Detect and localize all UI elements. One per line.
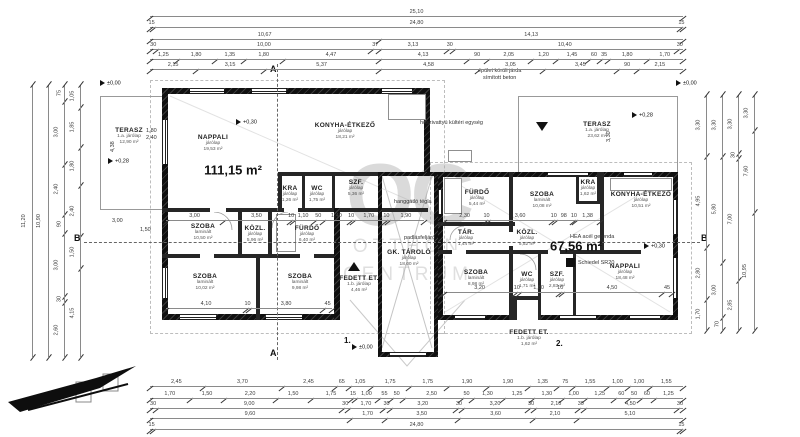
dim-segment: 3,05 — [478, 61, 544, 70]
dim-segment: 50 — [461, 390, 473, 399]
room-label-furdo-left: FÜRDŐ járólap 6,40 m² — [295, 225, 320, 244]
dim-segment: 45 — [662, 284, 672, 293]
dim-segment: 3,60 — [458, 410, 533, 419]
partition-wall — [256, 254, 260, 320]
dim-value: 1,00 — [361, 392, 372, 398]
dim-value: 10,40 — [558, 43, 572, 49]
window-opening — [548, 172, 588, 177]
dim-value: 65 — [339, 380, 345, 386]
dim-value: 10,67 — [258, 33, 272, 39]
dim-value: 45 — [325, 302, 331, 308]
dim-value: 3,20 — [474, 286, 485, 292]
dim-value: 50 — [631, 392, 637, 398]
site-sketch-arrow — [8, 358, 138, 420]
dim-segment: 1,35 — [528, 378, 557, 387]
dim-segment: 1,50 — [190, 390, 225, 399]
dim-value: 1,70 — [659, 53, 670, 59]
dim-value: 10,90 — [37, 214, 43, 228]
dim-value: 3,45 — [575, 63, 586, 69]
dim-segment: 1,25 — [503, 390, 532, 399]
dim-segment: 7,00 — [730, 158, 739, 280]
dim-value: 1,80 — [71, 161, 77, 172]
dim-value: 5,80 — [713, 203, 719, 214]
dim-segment: 1,40 — [323, 212, 350, 221]
dim-300: 3,00 — [112, 218, 123, 225]
dim-segment: 24,80 — [153, 421, 680, 430]
dim-value: 10,00 — [257, 43, 271, 49]
room-label-szoba2-left: SZOBA laminált 10,02 m² — [193, 273, 217, 292]
dim-value: 50 — [394, 392, 400, 398]
level-marker-zero-topright: ±0,00 — [676, 80, 697, 86]
dim-segment: 1,10 — [293, 212, 314, 221]
dim-segment: 50 — [628, 390, 640, 399]
dim-segment: 1,75 — [409, 378, 447, 387]
dim-segment: 1,55 — [573, 378, 606, 387]
dim-segment: 4,47 — [283, 51, 379, 60]
room-label-konyha-left: KONYHA-ÉTKEZŐ járólap 18,21 m² — [315, 122, 376, 141]
dimension-chain-left-4: 1,051,851,802,401,504,15 — [72, 85, 81, 357]
dim-value: 1,90 — [401, 214, 412, 220]
floor-plan-drawing: OC OTTHON CENTRUM — [0, 0, 800, 437]
dim-value: 1,50 — [71, 247, 77, 258]
dim-value: 1,35 — [225, 53, 236, 59]
dim-value: 3,70 — [237, 380, 248, 386]
dim-value: 2,45 — [303, 380, 314, 386]
dim-segment: 3,20 — [462, 400, 528, 409]
dim-segment: 2,50 — [403, 390, 461, 399]
room-label-wc-left: WC járólap 1,75 m² — [309, 185, 325, 204]
room-label-kra-left: KRA járólap 1,26 m² — [282, 185, 298, 204]
dim-value: 3,60 — [515, 214, 526, 220]
dim-segment: 3,00 — [56, 233, 65, 296]
kitchen-counter — [610, 178, 672, 191]
dim-segment: 2,30 — [444, 212, 485, 221]
dimension-chain-inner-left-2: 4,10103,8045 — [166, 300, 332, 309]
dim-330: 3,30 — [606, 131, 613, 142]
dim-segment: 3,80 — [249, 300, 323, 309]
dim-segment: 75 — [56, 85, 65, 101]
dim-value: 1,25 — [594, 392, 605, 398]
dim-segment: 1,80 — [519, 284, 559, 293]
dimension-chain-right-3: 3,30307,002,85 — [730, 95, 739, 330]
dim-segment: 3,45 — [543, 61, 617, 70]
dim-segment: 3,00 — [166, 212, 223, 221]
level-marker-nappali: +0,30 — [236, 119, 257, 125]
dim-segment: 1,80 — [72, 147, 81, 185]
dim-value: 7,00 — [729, 214, 735, 225]
dim-segment: 4,95 — [698, 156, 707, 247]
window-opening — [180, 314, 216, 320]
dim-segment: 10,67 — [150, 31, 379, 40]
section-line-b — [84, 242, 700, 243]
dim-segment: 1,75 — [311, 390, 352, 399]
plan-number-1: 1. — [344, 336, 351, 345]
window-dim-pair: 1,80 2,40 — [146, 128, 157, 141]
entry-arrow-right — [536, 122, 548, 131]
dim-value: 2,30 — [459, 214, 470, 220]
level-marker-right-b: +0,30 — [644, 243, 665, 249]
dim-value: 2,15 — [168, 63, 179, 69]
dim-value: 9,00 — [244, 402, 255, 408]
dim-value: 1,70 — [164, 392, 175, 398]
garage-door-opening — [390, 352, 426, 357]
dim-value: 70 — [715, 321, 721, 327]
dim-value: 30 — [677, 402, 683, 408]
dim-segment: 25,10 — [150, 8, 683, 17]
dim-value: 3,30 — [729, 118, 735, 129]
dim-150: 1,50 — [140, 227, 151, 234]
dim-segment: 2,80 — [698, 247, 707, 299]
dim-segment: 2,85 — [730, 280, 739, 330]
door-opening — [200, 254, 214, 258]
dim-segment: 1,05 — [349, 378, 372, 387]
dim-value: 60 — [591, 53, 597, 59]
dim-value: 2,15 — [655, 63, 666, 69]
dim-segment: 45 — [323, 300, 332, 309]
dim-segment: 1,90 — [447, 378, 488, 387]
dimension-chain-top-3: 10,6714,13 — [150, 31, 683, 40]
dim-value: 3,15 — [225, 63, 236, 69]
dim-value: 24,80 — [410, 423, 424, 429]
dimension-chain-right-1: 3,304,952,801,70 — [698, 95, 707, 330]
door-opening — [300, 254, 314, 258]
door-opening — [509, 232, 513, 246]
dimension-chain-right-2: 3,305,803,0070 — [714, 95, 723, 330]
room-label-szoba1-left: SZOBA laminált 10,50 m² — [191, 223, 215, 242]
dim-segment: 3,00 — [56, 101, 65, 164]
dim-segment: 10,00 — [156, 41, 371, 50]
dim-segment: 1,45 — [556, 51, 587, 60]
dimension-chain-inner-right-1: 2,30103,601098101,38 — [444, 212, 600, 221]
dim-value: 1,80 — [191, 53, 202, 59]
dim-value: 2,40 — [55, 184, 61, 195]
dim-segment: 10,40 — [453, 41, 677, 50]
dim-segment: 10,90 — [40, 85, 49, 357]
dimension-chain-bottom-5: 1524,8015 — [150, 421, 683, 430]
dim-segment: 1,00 — [628, 378, 649, 387]
dim-value: 90 — [474, 53, 480, 59]
level-marker-zero-topleft: ±0,00 — [100, 80, 121, 86]
dim-value: 1,50 — [202, 392, 213, 398]
dim-segment: 2,40 — [72, 185, 81, 236]
dim-value: 90 — [57, 221, 63, 227]
dimension-chain-top-6: 2,153,155,374,583,053,45902,15 — [150, 61, 683, 70]
dim-segment: 90 — [617, 61, 636, 70]
window-opening — [630, 315, 660, 320]
dim-segment: 2,45 — [282, 378, 335, 387]
dim-segment: 4,15 — [72, 268, 81, 357]
dim-segment: 1,90 — [388, 212, 424, 221]
dim-value: 1,55 — [661, 380, 672, 386]
dim-segment: 1,55 — [650, 378, 683, 387]
dim-value: 2,80 — [697, 268, 703, 279]
dim-value: 4,13 — [418, 53, 429, 59]
dim-value: 1,00 — [568, 392, 579, 398]
dim-segment: 1,80 — [177, 51, 216, 60]
room-label-fedett-right: FEDETT ET. 1.b. járólap 1,62 m² — [509, 329, 548, 348]
dim-segment: 1,70 — [350, 410, 385, 419]
dim-segment: 3,30 — [730, 95, 739, 153]
dimension-chain-top-1: 25,10 — [150, 8, 683, 17]
dim-segment: 4,10 — [166, 300, 246, 309]
dim-segment: 30 — [677, 400, 683, 409]
window-opening — [560, 315, 596, 320]
dim-value: 1,85 — [71, 122, 77, 133]
dim-segment: 4,13 — [379, 51, 468, 60]
dim-segment: 60 — [588, 51, 601, 60]
dim-value: 3,50 — [251, 214, 262, 220]
dim-segment: 1,30 — [532, 390, 562, 399]
dim-value: 3,30 — [697, 120, 703, 131]
dim-value: 1,00 — [634, 380, 645, 386]
dim-segment: 9,00 — [156, 400, 342, 409]
dim-value: 3,60 — [490, 412, 501, 418]
dim-segment: 2,05 — [487, 51, 531, 60]
dim-value: 3,00 — [189, 214, 200, 220]
dim-value: 1,90 — [462, 380, 473, 386]
dim-value: 35 — [601, 53, 607, 59]
total-area-right: 67,56 m² — [550, 239, 602, 254]
dim-segment: 1,00 — [562, 390, 585, 399]
dim-value: 4,58 — [423, 63, 434, 69]
dim-value: 4,50 — [607, 286, 618, 292]
window-opening — [438, 190, 443, 214]
room-label-szf-left: SZF. járólap 5,36 m² — [348, 179, 364, 198]
dim-segment: 15 — [680, 421, 683, 430]
room-label-nappali-left: NAPPALI járólap 19,53 m² — [198, 134, 228, 153]
dim-segment: 15 — [680, 19, 683, 28]
dim-value: 2,10 — [550, 412, 561, 418]
dim-segment: 65 — [335, 378, 349, 387]
dim-segment: 1,50 — [72, 236, 81, 268]
dim-segment: 3,20 — [390, 400, 456, 409]
dimension-chain-right-4: 3,307,6010,95 — [746, 95, 755, 330]
dim-value: 10,95 — [743, 264, 749, 278]
dim-value: 1,75 — [385, 380, 396, 386]
dim-segment: 1,80 — [244, 51, 283, 60]
dim-segment: 1,25 — [654, 390, 683, 399]
window-opening — [673, 200, 678, 234]
dim-value: 5,37 — [316, 63, 327, 69]
partition-wall — [603, 250, 641, 254]
room-label-nappali-right: NAPPALI járólap 18,48 m² — [610, 263, 640, 282]
level-marker-terasz-right: +0,28 — [632, 112, 653, 118]
dim-segment: 5,37 — [264, 61, 379, 70]
dim-value: 1,30 — [482, 392, 493, 398]
dimension-chain-left-1: 11,20 — [24, 85, 33, 357]
room-label-kozl-right: KÖZL. járólap 5,52 m² — [517, 229, 538, 248]
dim-value: 2,60 — [55, 324, 61, 335]
chimney — [566, 258, 575, 267]
dim-value: 15 — [678, 21, 684, 27]
dim-segment: 2,40 — [56, 164, 65, 214]
dim-value: 1,05 — [355, 380, 366, 386]
dimension-chain-top-2: 1524,8015 — [150, 19, 683, 28]
plan-number-2: 2. — [556, 339, 563, 348]
dim-segment: 3,50 — [223, 212, 290, 221]
dim-value: 37 — [372, 43, 378, 49]
dim-value: 3,80 — [281, 302, 292, 308]
dim-value: 1,80 — [622, 53, 633, 59]
bathtub — [444, 178, 462, 214]
room-label-szoba3-left: SZOBA laminált 9,98 m² — [288, 273, 312, 292]
dim-value: 24,80 — [410, 21, 424, 27]
dim-segment: 4,50 — [584, 400, 677, 409]
dim-value: 50 — [463, 392, 469, 398]
dim-segment: 3,60 — [488, 212, 552, 221]
dim-segment: 1,25 — [150, 51, 177, 60]
dim-segment: 1,38 — [575, 212, 600, 221]
dim-value: 3,50 — [416, 412, 427, 418]
dim-value: 1,70 — [363, 214, 374, 220]
dim-segment: 1,80 — [608, 51, 647, 60]
dim-segment: 2,60 — [56, 302, 65, 357]
window-opening — [162, 268, 168, 298]
dim-segment: 50 — [314, 212, 324, 221]
dim-value: 45 — [664, 286, 670, 292]
dim-value: 1,50 — [288, 392, 299, 398]
room-label-garage: GK. TÁROLÓ járólap 18,00 m² — [387, 249, 431, 268]
dim-segment: 1,00 — [355, 390, 378, 399]
dim-value: 25,10 — [410, 10, 424, 16]
dimension-chain-inner-left-1: 3,003,50101,10501,40101,70101,90 — [166, 212, 424, 221]
dim-value: 2,50 — [426, 392, 437, 398]
dim-value: 7,60 — [745, 166, 751, 177]
dim-value: 5,10 — [625, 412, 636, 418]
dim-value: 4,47 — [326, 53, 337, 59]
dim-segment: 1,50 — [276, 390, 311, 399]
dim-value: 3,30 — [713, 120, 719, 131]
dim-segment: 7,60 — [746, 130, 755, 212]
dim-value: 1,30 — [541, 392, 552, 398]
dim-value: 30 — [677, 43, 683, 49]
dim-value: 1,75 — [326, 392, 337, 398]
dimension-chain-bottom-4: 9,601,703,503,602,105,10 — [150, 410, 683, 419]
window-opening — [190, 88, 224, 94]
dim-value: 3,20 — [490, 402, 501, 408]
dim-segment: 30 — [677, 41, 683, 50]
dim-value: 4,15 — [71, 307, 77, 318]
dim-value: 3,20 — [417, 402, 428, 408]
dim-value: 1,05 — [71, 91, 77, 102]
dim-value: 1,45 — [567, 53, 578, 59]
dim-value: 75 — [562, 380, 568, 386]
dim-segment: 2,15 — [637, 61, 683, 70]
dim-segment: 9,60 — [150, 410, 350, 419]
kitchen-counter — [388, 94, 426, 120]
dimension-chain-top-4: 3010,00373,133010,4030 — [150, 41, 683, 50]
dim-value: 1,80 — [258, 53, 269, 59]
heat-pump-unit — [448, 150, 472, 162]
dim-segment: 3,00 — [714, 262, 723, 317]
dim-value: 2,85 — [729, 300, 735, 311]
partition-wall — [302, 172, 305, 212]
window-opening — [162, 120, 168, 164]
dim-segment: 1,35 — [215, 51, 244, 60]
dim-value: 4,50 — [625, 402, 636, 408]
room-label-tar-right: TÁR. járólap 1,44 m² — [458, 229, 474, 248]
dim-segment: 1,70 — [353, 212, 385, 221]
dim-segment: 2,10 — [534, 400, 577, 409]
dim-value: 60 — [644, 392, 650, 398]
dimension-chain-left-2: 10,90 — [40, 85, 49, 357]
dim-value: 3,00 — [713, 284, 719, 295]
dimension-chain-inner-right-2: 3,20101,80104,5045 — [444, 284, 672, 293]
dim-segment: 55 — [378, 390, 391, 399]
window-opening — [266, 314, 302, 320]
dim-value: 15 — [678, 423, 684, 429]
dim-segment: 24,80 — [153, 19, 680, 28]
dim-segment: 90 — [56, 214, 65, 233]
note-padlasfeljaro: padlásfeljáró — [404, 235, 435, 242]
dim-segment: 5,10 — [577, 410, 683, 419]
dim-value: 90 — [624, 63, 630, 69]
dim-segment: 1,70 — [348, 400, 383, 409]
dim-value: 1,25 — [663, 392, 674, 398]
room-label-konyha-right: KONYHA-ÉTKEZŐ járólap 10,51 m² — [611, 191, 672, 210]
dim-value: 3,05 — [505, 63, 516, 69]
level-marker-zero-bottom: ±0,00 — [352, 344, 373, 350]
dim-segment: 60 — [614, 390, 628, 399]
dim-value: 3,13 — [408, 43, 419, 49]
dim-value: 50 — [315, 214, 321, 220]
dim-value: 2,10 — [551, 402, 562, 408]
dim-value: 30 — [447, 43, 453, 49]
dim-value: 1,25 — [158, 53, 169, 59]
dim-value: 1,55 — [585, 380, 596, 386]
dim-value: 2,05 — [503, 53, 514, 59]
dimension-chain-left-3: 753,002,40903,00302,60 — [56, 85, 65, 357]
dim-value: 30 — [150, 43, 156, 49]
dim-segment: 3,30 — [698, 95, 707, 156]
dim-value: 2,20 — [245, 392, 256, 398]
dimension-chain-bottom-1: 2,453,702,45651,051,751,751,901,901,3575… — [150, 378, 683, 387]
dim-value: 11,20 — [22, 214, 28, 227]
dim-value: 3,00 — [55, 127, 61, 138]
wall — [378, 172, 438, 176]
wall — [378, 172, 382, 357]
dim-segment: 1,75 — [371, 378, 409, 387]
dim-segment: 3,50 — [385, 410, 458, 419]
dim-segment: 75 — [557, 378, 573, 387]
dim-segment: 35 — [600, 51, 608, 60]
section-marker-a-bottom: A — [270, 348, 277, 358]
dim-segment: 11,20 — [24, 85, 33, 357]
dim-segment: 3,13 — [379, 41, 446, 50]
room-label-furdo-right: FÜRDŐ járólap 5,44 m² — [465, 189, 490, 208]
window-opening — [455, 315, 485, 320]
dim-segment: 60 — [640, 390, 654, 399]
room-label-kozl-left: KÖZL. járólap 5,96 m² — [245, 225, 266, 244]
dim-segment: 1,20 — [531, 51, 557, 60]
dim-segment: 4,50 — [562, 284, 662, 293]
room-label-szoba1-right: SZOBA laminált 10,08 m² — [530, 191, 554, 210]
dim-value: 4,95 — [697, 196, 703, 207]
note-hoszivattyu: hőszivattyú kültéri egység — [420, 120, 483, 127]
dim-value: 1,70 — [362, 412, 373, 418]
dim-segment: 4,58 — [379, 61, 477, 70]
dim-value: 1,35 — [537, 380, 548, 386]
room-label-fedett-left: FEDETT ET. 1.b. járólap 4,46 m² — [339, 275, 378, 294]
dim-segment: 5,80 — [714, 156, 723, 262]
dim-segment: 14,13 — [379, 31, 683, 40]
dim-segment: 1,70 — [698, 299, 707, 330]
dim-value: 1,00 — [612, 380, 623, 386]
dim-segment: 2,45 — [150, 378, 203, 387]
dim-value: 1,75 — [422, 380, 433, 386]
dim-segment: 37 — [371, 41, 379, 50]
dim-value: 60 — [618, 392, 624, 398]
